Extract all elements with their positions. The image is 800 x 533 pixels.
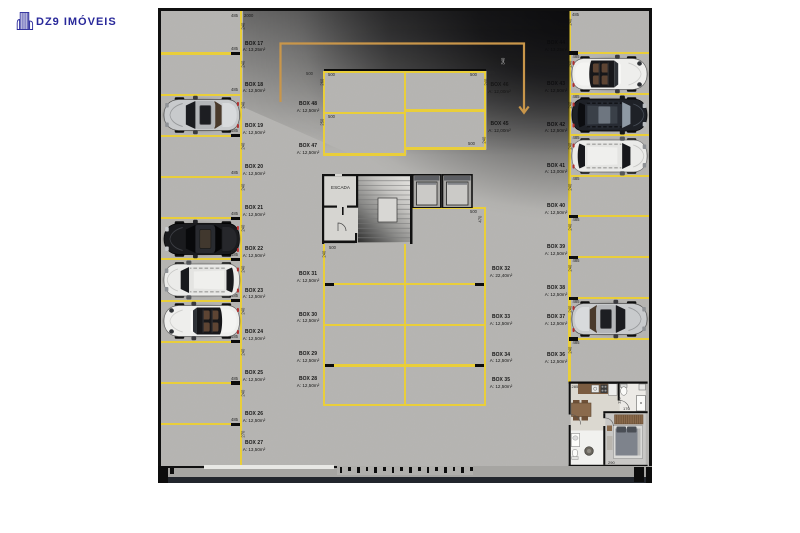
svg-text:290: 290 — [608, 460, 615, 465]
svg-text:ESCADA: ESCADA — [331, 185, 351, 190]
svg-text:170: 170 — [623, 406, 630, 411]
svg-text:285: 285 — [572, 384, 579, 389]
svg-text:120: 120 — [617, 397, 622, 404]
